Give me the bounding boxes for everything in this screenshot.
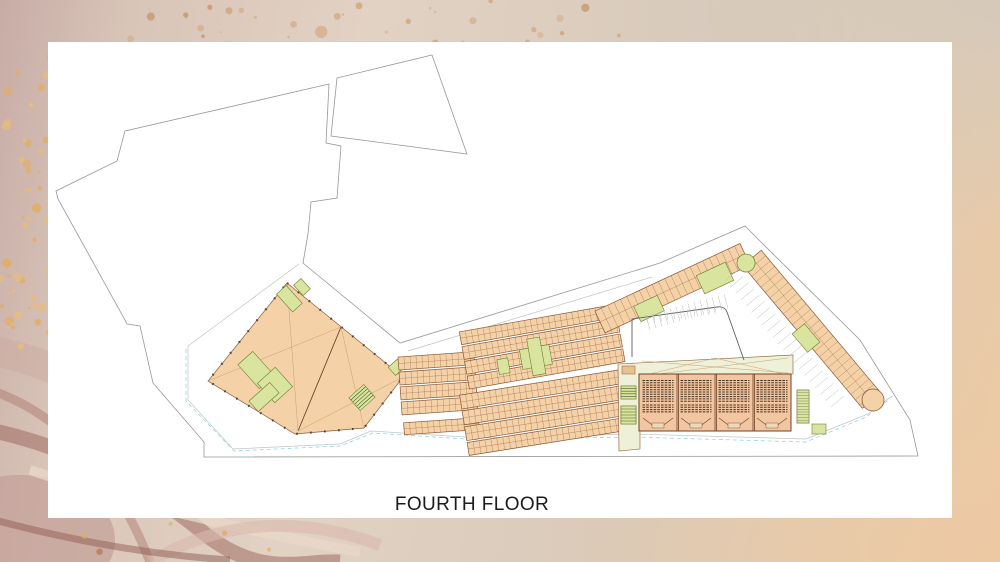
retail-row xyxy=(595,244,750,333)
slide-background: FOURTH FLOOR xyxy=(0,0,1000,562)
escalator-strip xyxy=(797,390,809,423)
cinema-block xyxy=(639,374,826,434)
floor-title: FOURTH FLOOR xyxy=(395,494,549,516)
plot-outline xyxy=(331,55,467,154)
anchor-store-building xyxy=(208,278,404,434)
floor-plan xyxy=(0,0,1000,562)
